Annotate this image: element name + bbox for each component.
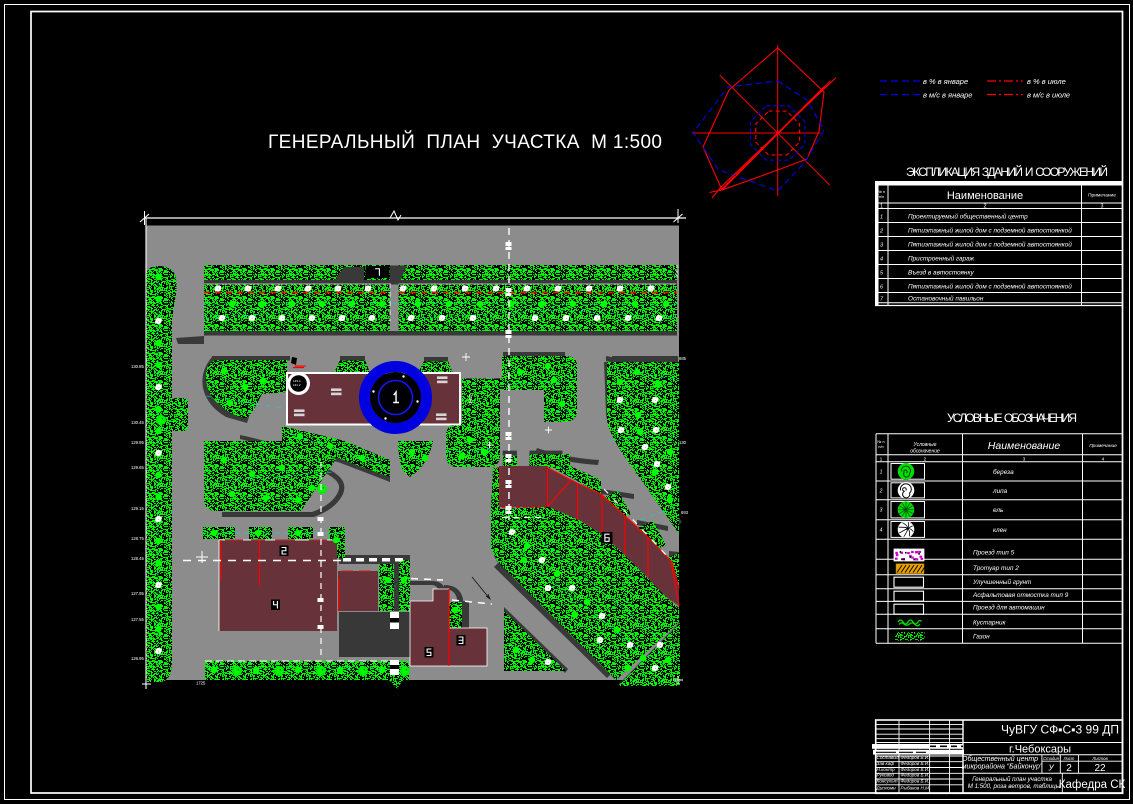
svg-text:130.85: 130.85: [131, 364, 144, 369]
svg-text:127.95: 127.95: [131, 591, 144, 596]
svg-text:в м/с в июле: в м/с в июле: [1027, 91, 1070, 100]
svg-text:липа: липа: [992, 488, 1008, 495]
svg-text:Рыбаков Н.М.: Рыбаков Н.М.: [901, 786, 931, 791]
svg-text:Зав каф: Зав каф: [877, 761, 895, 766]
svg-text:микрорайона “Байконур”: микрорайона “Байконур”: [962, 763, 1043, 771]
svg-text:127.55: 127.55: [131, 617, 144, 622]
svg-text:в % в июле: в % в июле: [1027, 77, 1066, 86]
svg-text:129.15: 129.15: [131, 506, 144, 511]
svg-text:2: 2: [1066, 763, 1072, 774]
svg-text:2: 2: [879, 488, 883, 494]
svg-text:береза: береза: [993, 468, 1014, 476]
svg-text:Дипломн: Дипломн: [876, 786, 897, 791]
svg-text:3: 3: [1023, 456, 1026, 462]
svg-text:обозначение: обозначение: [910, 449, 940, 455]
svg-text:Пятиэтажный жилой дом с подзем: Пятиэтажный жилой дом с подземной автост…: [908, 283, 1072, 291]
svg-text:в % в январе: в % в январе: [923, 77, 968, 86]
svg-text:4: 4: [1102, 456, 1105, 462]
svg-text:2: 2: [879, 229, 883, 235]
svg-text:2: 2: [983, 204, 986, 210]
svg-text:128.75: 128.75: [131, 536, 144, 541]
svg-text:п/п: п/п: [878, 445, 883, 449]
svg-text:М 1:500, роза ветров, таблицы: М 1:500, роза ветров, таблицы: [968, 783, 1061, 790]
svg-text:126.95: 126.95: [131, 656, 144, 661]
svg-text:Листов: Листов: [1091, 756, 1108, 761]
svg-text:ЭКСПЛИКАЦИЯ ЗДАНИЙ И СООРУЖ: ЭКСПЛИКАЦИЯ ЗДАНИЙ И СООРУЖЕНИЙ: [906, 164, 1108, 179]
svg-text:в м/с в январе: в м/с в январе: [923, 91, 972, 100]
svg-text:Проектируемый общественный цен: Проектируемый общественный центр: [908, 213, 1028, 221]
svg-text:Въезд в автостоянку: Въезд в автостоянку: [908, 269, 974, 277]
svg-text:Пристроенный гараж: Пристроенный гараж: [908, 255, 975, 263]
svg-text:3: 3: [880, 508, 883, 514]
svg-text:Составил: Составил: [877, 755, 899, 760]
svg-text:129.65: 129.65: [131, 465, 144, 470]
svg-text:г.Чебоксары: г.Чебоксары: [1009, 744, 1071, 756]
svg-text:Проезд для автомашин: Проезд для автомашин: [973, 604, 1045, 612]
svg-text:УСЛОВНЫЕ ОБОЗНАЧЕНИЯ: УСЛОВНЫЕ ОБОЗНАЧЕНИЯ: [947, 411, 1077, 425]
svg-text:2: 2: [924, 456, 927, 462]
svg-text:Федоров Б.И.: Федоров Б.И.: [901, 778, 930, 783]
svg-text:Федоров Б.И.: Федоров Б.И.: [901, 767, 930, 772]
svg-text:Пятиэтажный жилой дом с подзем: Пятиэтажный жилой дом с подземной автост…: [908, 241, 1072, 249]
svg-text:Федоров Б.И.: Федоров Б.И.: [901, 773, 930, 778]
svg-text:131.2: 131.2: [293, 383, 301, 387]
svg-text:Остановочный павильон: Остановочный павильон: [908, 295, 984, 303]
svg-text:№ п: № п: [877, 440, 884, 444]
svg-text:Кафедра СК: Кафедра СК: [1059, 779, 1126, 791]
svg-text:4: 4: [880, 257, 883, 263]
svg-text:ель: ель: [993, 507, 1003, 514]
svg-text:130.45: 130.45: [131, 420, 144, 425]
svg-text:Кустарник: Кустарник: [973, 619, 1007, 626]
svg-text:п/п: п/п: [879, 195, 884, 199]
svg-text:Проезд тип 5: Проезд тип 5: [973, 549, 1015, 557]
svg-text:клен: клен: [993, 527, 1007, 534]
svg-text:У: У: [1047, 764, 1054, 773]
svg-text:Примечание: Примечание: [1088, 193, 1116, 199]
svg-text:685: 685: [679, 356, 687, 361]
svg-text:ЧуВГУ СФ▪С▪3 99 ДП: ЧуВГУ СФ▪С▪3 99 ДП: [1001, 723, 1119, 737]
svg-text:Общественный центр: Общественный центр: [962, 755, 1038, 763]
svg-text:1: 1: [880, 204, 883, 210]
svg-text:Газон: Газон: [973, 634, 990, 641]
svg-text:1725: 1725: [196, 681, 206, 686]
svg-text:Асфальтовая отмостка тип 9: Асфальтовая отмостка тип 9: [972, 592, 1069, 599]
svg-text:Примечание: Примечание: [1089, 443, 1117, 449]
svg-text:1: 1: [880, 469, 883, 475]
svg-text:1: 1: [880, 215, 883, 221]
svg-text:128.45: 128.45: [131, 556, 144, 561]
svg-text:Руковод: Руковод: [877, 773, 895, 778]
svg-text:1: 1: [880, 456, 883, 462]
svg-text:Стадия: Стадия: [1043, 756, 1059, 761]
svg-text:Наименование: Наименование: [947, 190, 1023, 202]
svg-text:Лист: Лист: [1063, 756, 1075, 761]
svg-text:Федоров Б.И.: Федоров Б.И.: [901, 755, 930, 760]
svg-text:Федоров Б.И.: Федоров Б.И.: [901, 761, 930, 766]
svg-text:Условные: Условные: [913, 442, 936, 448]
svg-text:Консульт: Консульт: [877, 778, 898, 783]
svg-text:ГЕНЕРАЛЬНЫЙ ПЛАН УЧАСТКА М: ГЕНЕРАЛЬНЫЙ ПЛАН УЧАСТКА М 1:500: [268, 131, 664, 153]
svg-text:22: 22: [1094, 763, 1106, 774]
svg-text:Наименование: Наименование: [988, 440, 1061, 452]
svg-text:693: 693: [681, 510, 689, 515]
svg-text:Пятиэтажный жилой дом с подзем: Пятиэтажный жилой дом с подземной автост…: [908, 227, 1072, 235]
svg-text:129.95: 129.95: [131, 440, 144, 445]
svg-text:Н.контр: Н.контр: [877, 767, 896, 772]
svg-text:Тротуар тип 2: Тротуар тип 2: [973, 565, 1019, 572]
svg-text:3950: 3950: [468, 394, 473, 404]
svg-text:4: 4: [880, 527, 883, 533]
svg-text:Улучшенный грунт: Улучшенный грунт: [972, 578, 1032, 586]
svg-text:3: 3: [1101, 204, 1104, 210]
svg-text:130: 130: [679, 440, 687, 445]
svg-text:№ п: № п: [878, 190, 885, 194]
